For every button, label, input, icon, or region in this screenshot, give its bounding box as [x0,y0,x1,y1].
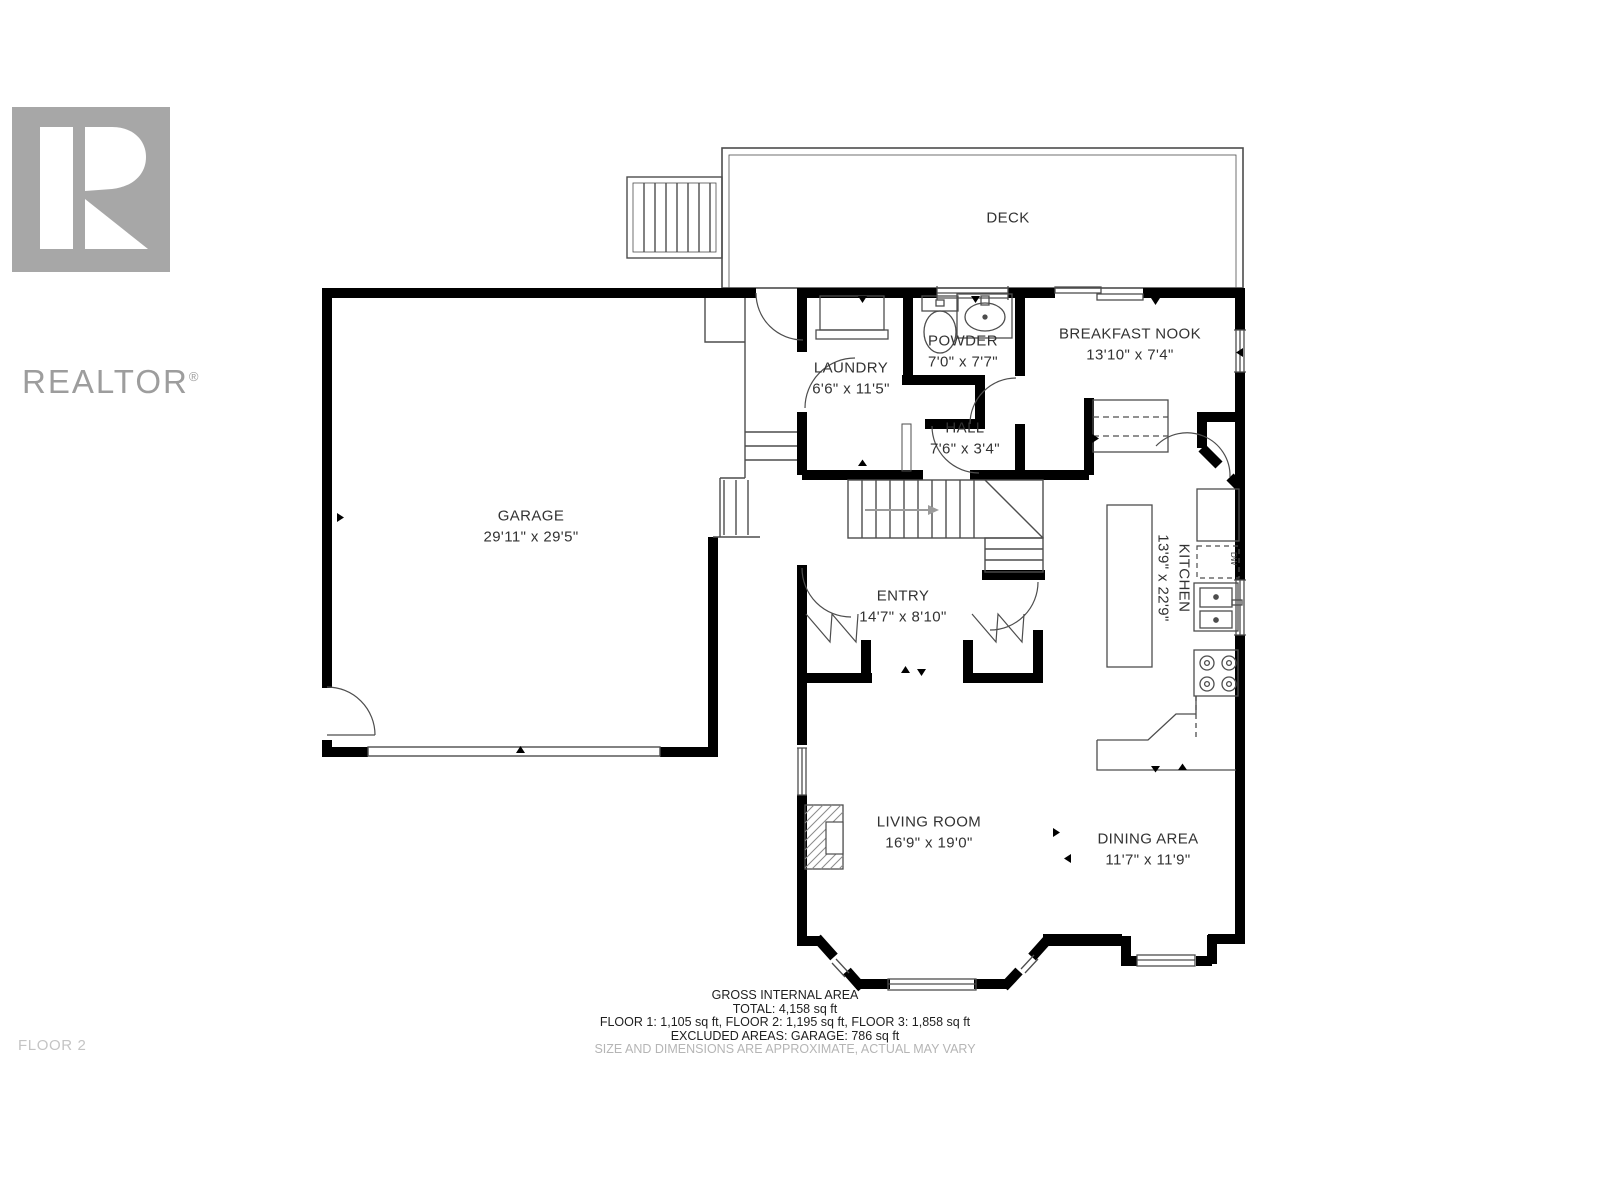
total-area: TOTAL: 4,158 sq ft [594,1003,975,1017]
breakfast-nook-dims: 13'10" x 7'4" [1059,345,1201,366]
room-label-living-room: LIVING ROOM 16'9" x 19'0" [877,812,981,853]
room-label-kitchen: KITCHEN 13'9" x 22'9" [1152,534,1193,621]
hall-name: HALL [930,418,1000,439]
stove-icon [1194,650,1238,696]
breakfast-nook-counter [1093,400,1168,452]
disclaimer: SIZE AND DIMENSIONS ARE APPROXIMATE, ACT… [594,1043,975,1057]
gross-internal-area-title: GROSS INTERNAL AREA [594,989,975,1003]
room-label-entry: ENTRY 14'7" x 8'10" [859,586,946,627]
room-label-garage: GARAGE 29'11" x 29'5" [483,506,578,547]
kitchen-sink-icon [1194,583,1242,631]
garage-door [368,747,660,756]
dishwasher-label: DW [1229,552,1238,566]
dining-area-name: DINING AREA [1097,829,1198,850]
floor-number-label: FLOOR 2 [18,1037,86,1054]
garage-dims: 29'11" x 29'5" [483,527,578,548]
basement-stairs [705,298,797,537]
living-room-name: LIVING ROOM [877,812,981,833]
dining-area-dims: 11'7" x 11'9" [1097,850,1198,871]
deck-stairs [627,177,722,258]
deck-name: DECK [986,209,1029,230]
kitchen-counter [1097,696,1236,770]
fireplace-icon [805,805,843,869]
entry-dims: 14'7" x 8'10" [859,607,946,628]
breakfast-nook-name: BREAKFAST NOOK [1059,324,1201,345]
dishwasher-icon: DW [1197,546,1239,578]
washer-dryer-icon [816,296,888,339]
powder-dims: 7'0" x 7'7" [928,352,998,373]
room-label-dining-area: DINING AREA 11'7" x 11'9" [1097,829,1198,870]
living-room-dims: 16'9" x 19'0" [877,833,981,854]
powder-name: POWDER [928,331,998,352]
main-stairs [848,480,1043,572]
room-label-breakfast-nook: BREAKFAST NOOK 13'10" x 7'4" [1059,324,1201,365]
room-label-powder: POWDER 7'0" x 7'7" [928,331,998,372]
room-label-laundry: LAUNDRY 6'6" x 11'5" [812,358,890,399]
deck-outline [722,148,1243,288]
excluded-areas: EXCLUDED AREAS: GARAGE: 786 sq ft [594,1030,975,1044]
entry-name: ENTRY [859,586,946,607]
kitchen-dims: 13'9" x 22'9" [1152,534,1173,621]
laundry-name: LAUNDRY [812,358,890,379]
kitchen-name: KITCHEN [1173,534,1194,621]
garage-name: GARAGE [483,506,578,527]
room-label-hall: HALL 7'6" x 3'4" [930,418,1000,459]
floor-areas: FLOOR 1: 1,105 sq ft, FLOOR 2: 1,195 sq … [594,1016,975,1030]
laundry-dims: 6'6" x 11'5" [812,379,890,400]
hall-dims: 7'6" x 3'4" [930,439,1000,460]
kitchen-island [1107,505,1152,667]
room-label-deck: DECK [986,209,1029,230]
area-summary: GROSS INTERNAL AREA TOTAL: 4,158 sq ft F… [594,989,975,1057]
fridge-icon [1197,489,1239,541]
